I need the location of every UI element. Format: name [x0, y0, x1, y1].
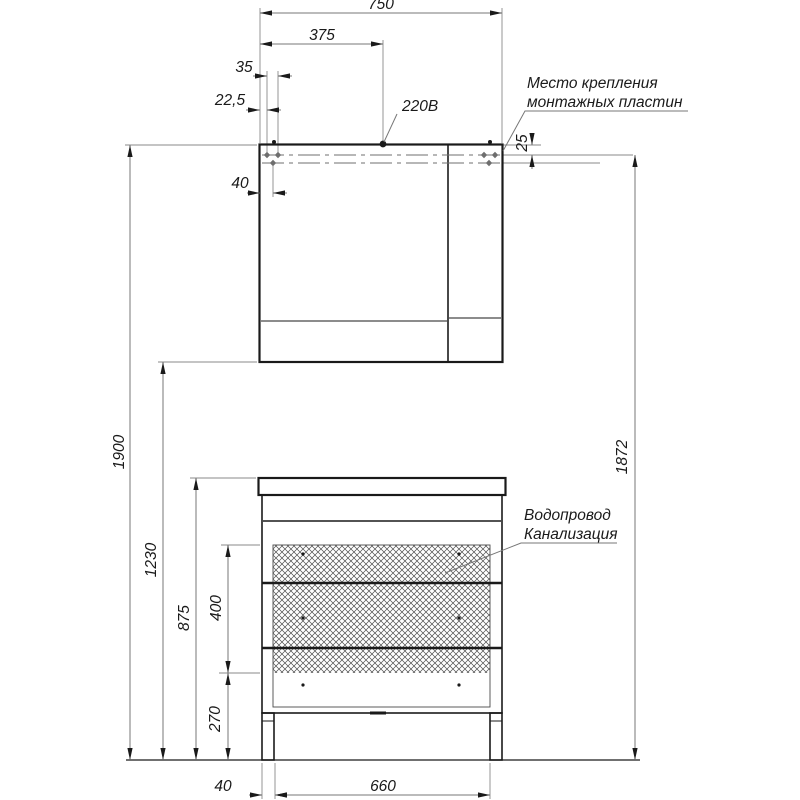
left-leg — [262, 713, 274, 760]
leader-lines — [384, 111, 688, 573]
power-label: 220В — [401, 98, 438, 115]
dim-text-1872: 1872 — [614, 439, 631, 474]
countertop — [259, 478, 506, 495]
dim-text-40: 40 — [231, 175, 249, 192]
right-leg — [490, 713, 502, 760]
top-screw-right-dot — [488, 140, 492, 144]
dim-text-750: 750 — [368, 0, 394, 13]
dim-text-660: 660 — [370, 778, 396, 795]
dimension-lines — [130, 13, 635, 795]
mounting-label-line2: монтажных пластин — [527, 94, 683, 111]
dim-text-375: 375 — [309, 27, 335, 44]
mirror-cabinet — [260, 140, 503, 362]
dim-text-875: 875 — [176, 605, 193, 631]
dim-text-1230: 1230 — [143, 542, 160, 577]
mirror-cabinet-outline — [260, 145, 503, 363]
technical-drawing-page: 750 375 35 22,5 40 25 1900 1230 875 400 … — [0, 0, 800, 800]
water-label-line2: Канализация — [524, 526, 618, 543]
power-outlet-dot — [380, 141, 387, 148]
utility-opening-hatch — [273, 545, 490, 673]
mounting-plate-points — [264, 152, 498, 166]
top-screw-left-dot — [272, 140, 276, 144]
dim-text-270: 270 — [207, 706, 224, 733]
dimension-texts: 750 375 35 22,5 40 25 1900 1230 875 400 … — [111, 0, 631, 795]
dim-text-1900: 1900 — [111, 434, 128, 469]
dim-text-35: 35 — [235, 59, 253, 76]
power-leader — [384, 114, 397, 142]
dim-text-25: 25 — [514, 134, 531, 153]
dim-text-22-5: 22,5 — [214, 92, 246, 109]
water-label-line1: Водопровод — [524, 507, 611, 524]
mounting-label-line1: Место крепления — [527, 75, 658, 92]
furniture-installation-diagram: 750 375 35 22,5 40 25 1900 1230 875 400 … — [0, 0, 800, 800]
extension-lines — [125, 8, 633, 799]
dim-text-40b: 40 — [214, 778, 232, 795]
dim-text-400: 400 — [208, 595, 225, 621]
vanity-unit — [259, 478, 506, 760]
